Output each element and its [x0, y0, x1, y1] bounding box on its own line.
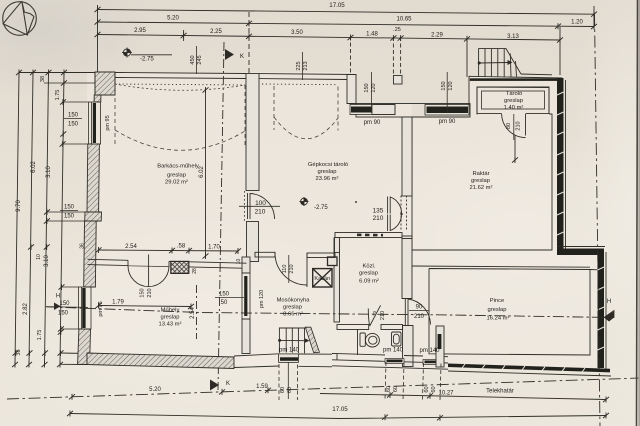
svg-text:1.75: 1.75	[37, 330, 43, 341]
svg-text:110: 110	[282, 265, 288, 274]
svg-text:210: 210	[255, 208, 266, 215]
svg-text:3.50: 3.50	[291, 30, 303, 36]
svg-text:3.10: 3.10	[44, 255, 50, 267]
svg-text:38: 38	[16, 349, 22, 355]
svg-text:38: 38	[40, 76, 46, 82]
svg-text:-2.75: -2.75	[314, 205, 328, 211]
svg-text:150: 150	[68, 122, 79, 128]
svg-text:greslap: greslap	[471, 178, 490, 184]
svg-text:150: 150	[219, 292, 230, 298]
svg-text:Gépkocsi tároló: Gépkocsi tároló	[308, 162, 348, 168]
svg-text:greslap: greslap	[160, 315, 179, 321]
svg-text:450: 450	[190, 55, 196, 64]
svg-text:210: 210	[289, 264, 295, 273]
svg-text:greslap: greslap	[167, 173, 186, 179]
svg-text:10.65: 10.65	[396, 17, 412, 23]
svg-text:Telekhatár: Telekhatár	[486, 389, 514, 395]
svg-text:Barkács-műhely: Barkács-műhely	[157, 164, 199, 170]
svg-text:245: 245	[197, 55, 203, 64]
svg-text:2.25: 2.25	[210, 29, 222, 35]
svg-text:5.20: 5.20	[167, 16, 179, 22]
svg-text:150: 150	[64, 214, 75, 220]
svg-text:210: 210	[147, 288, 153, 297]
svg-text:90: 90	[416, 305, 423, 311]
svg-text:135: 135	[373, 208, 384, 215]
svg-text:Közl.: Közl.	[363, 264, 376, 270]
svg-text:10.27: 10.27	[438, 391, 454, 397]
svg-text:1.70: 1.70	[208, 245, 220, 251]
svg-text:80: 80	[506, 123, 512, 129]
svg-text:greslap: greslap	[487, 307, 506, 313]
svg-text:210: 210	[373, 215, 384, 222]
svg-text:150: 150	[58, 311, 69, 317]
svg-text:23.96 m²: 23.96 m²	[316, 176, 339, 182]
svg-text:150: 150	[364, 83, 370, 92]
svg-text:8.66 m²: 8.66 m²	[283, 312, 303, 318]
svg-text:28: 28	[192, 268, 198, 274]
svg-text:150: 150	[140, 288, 146, 297]
svg-text:pm 140: pm 140	[419, 348, 440, 354]
svg-text:K: K	[226, 381, 230, 387]
svg-text:120: 120	[448, 81, 454, 90]
svg-text:1.75: 1.75	[55, 90, 61, 101]
svg-text:13.43 m²: 13.43 m²	[159, 322, 182, 328]
svg-text:210: 210	[516, 121, 522, 130]
svg-text:greslap: greslap	[359, 271, 378, 277]
svg-text:2.82: 2.82	[23, 303, 29, 315]
svg-text:6.09 m²: 6.09 m²	[359, 279, 379, 285]
svg-text:6.02: 6.02	[31, 161, 37, 173]
svg-text:225: 225	[296, 61, 302, 70]
svg-text:60: 60	[386, 386, 392, 392]
svg-text:H: H	[56, 294, 60, 300]
svg-text:pm 90: pm 90	[439, 119, 456, 125]
svg-text:5.20: 5.20	[149, 387, 161, 393]
svg-text:pm 140: pm 140	[279, 348, 300, 354]
svg-text:60: 60	[424, 386, 430, 392]
svg-text:60: 60	[393, 386, 399, 392]
svg-text:.25: .25	[393, 27, 401, 33]
svg-text:Műhely: Műhely	[161, 308, 180, 314]
svg-text:.58: .58	[177, 244, 186, 250]
svg-text:213: 213	[303, 61, 309, 70]
svg-text:greslap: greslap	[283, 305, 302, 311]
svg-text:greslap: greslap	[504, 98, 523, 104]
svg-text:9.70: 9.70	[16, 200, 22, 212]
svg-text:16.24 m²: 16.24 m²	[487, 316, 510, 322]
svg-text:150: 150	[59, 301, 70, 307]
svg-text:1.20: 1.20	[571, 20, 583, 26]
svg-text:pm 120: pm 120	[259, 290, 265, 308]
svg-text:21.62 m²: 21.62 m²	[470, 185, 493, 191]
svg-text:greslap: greslap	[317, 169, 336, 175]
svg-text:150: 150	[68, 113, 79, 119]
svg-text:150: 150	[64, 205, 75, 211]
svg-text:pm 140: pm 140	[383, 348, 404, 354]
svg-text:10: 10	[236, 259, 242, 265]
svg-text:2.95: 2.95	[134, 28, 146, 34]
svg-text:1.59: 1.59	[256, 384, 268, 390]
svg-text:Kazán: Kazán	[314, 276, 330, 282]
svg-text:50: 50	[221, 300, 228, 306]
svg-text:H: H	[607, 299, 611, 305]
svg-text:100: 100	[255, 200, 266, 207]
svg-text:K: K	[240, 54, 244, 60]
svg-text:Pince: Pince	[490, 298, 505, 304]
svg-text:10: 10	[36, 254, 42, 260]
svg-text:pm 95: pm 95	[105, 115, 111, 130]
svg-text:17.05: 17.05	[332, 406, 348, 413]
svg-text:3.13: 3.13	[507, 34, 519, 40]
svg-text:1.48: 1.48	[366, 32, 378, 38]
svg-text:-2.75: -2.75	[140, 57, 154, 63]
svg-text:6.02: 6.02	[199, 166, 205, 178]
svg-text:17.05: 17.05	[329, 2, 345, 9]
svg-text:Tároló: Tároló	[506, 91, 522, 97]
svg-text:29.02 m²: 29.02 m²	[165, 180, 188, 186]
svg-text:210: 210	[380, 311, 386, 320]
svg-text:pm 90: pm 90	[364, 120, 381, 126]
svg-text:2.29: 2.29	[431, 33, 443, 39]
svg-text:70: 70	[372, 311, 377, 317]
svg-text:1.79: 1.79	[112, 300, 124, 306]
svg-text:1.40 m²: 1.40 m²	[504, 105, 524, 111]
svg-text:2.54: 2.54	[125, 244, 137, 250]
svg-text:Raktár: Raktár	[472, 171, 489, 177]
svg-text:60: 60	[431, 386, 437, 392]
svg-text:3.10: 3.10	[46, 166, 52, 178]
svg-text:150: 150	[441, 81, 447, 90]
svg-text:Mosókonyha: Mosókonyha	[277, 298, 311, 304]
